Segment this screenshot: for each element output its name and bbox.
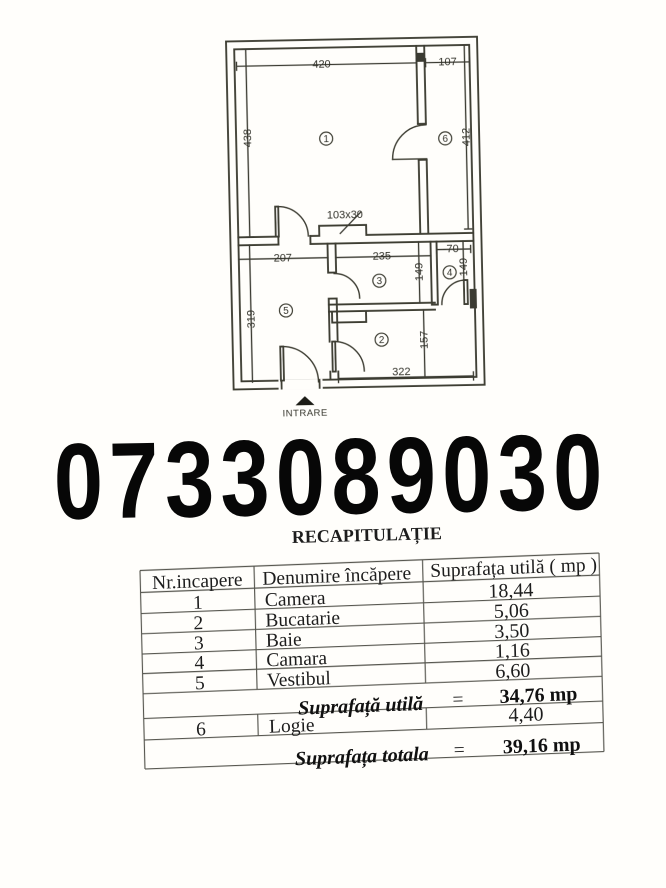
svg-text:420: 420 [312, 59, 331, 71]
svg-text:=: = [454, 740, 466, 761]
svg-text:149: 149 [413, 263, 425, 282]
svg-text:322: 322 [392, 366, 411, 378]
svg-text:5: 5 [195, 673, 205, 694]
svg-text:1: 1 [323, 134, 329, 145]
svg-text:6,60: 6,60 [495, 660, 531, 683]
svg-text:39,16 mp: 39,16 mp [503, 733, 581, 758]
svg-text:=: = [452, 689, 464, 710]
svg-text:Logie: Logie [269, 715, 315, 738]
svg-text:319: 319 [245, 310, 257, 329]
svg-text:4,40: 4,40 [508, 703, 544, 726]
svg-text:6: 6 [442, 134, 448, 145]
svg-text:4: 4 [447, 268, 453, 279]
svg-text:1: 1 [193, 593, 203, 614]
svg-text:2: 2 [379, 335, 385, 346]
svg-text:6: 6 [196, 719, 207, 740]
svg-text:-70-: -70- [443, 243, 463, 255]
svg-text:Vestibul: Vestibul [267, 668, 332, 691]
svg-text:3: 3 [194, 633, 204, 654]
svg-text:157: 157 [418, 331, 430, 350]
svg-text:5: 5 [283, 306, 289, 317]
svg-text:Bucatarie: Bucatarie [265, 608, 340, 632]
svg-text:3: 3 [376, 276, 382, 287]
svg-text:235: 235 [372, 250, 391, 262]
svg-text:149: 149 [458, 258, 470, 277]
svg-text:103x30: 103x30 [327, 209, 363, 222]
svg-text:412: 412 [461, 128, 473, 147]
svg-text:207: 207 [273, 252, 292, 264]
svg-text:Nr.incapere: Nr.incapere [152, 570, 243, 594]
svg-text:0733089030: 0733089030 [53, 411, 610, 542]
svg-text:4: 4 [194, 653, 205, 674]
svg-text:438: 438 [242, 129, 254, 148]
svg-text:107: 107 [438, 56, 457, 68]
svg-text:2: 2 [193, 613, 203, 634]
